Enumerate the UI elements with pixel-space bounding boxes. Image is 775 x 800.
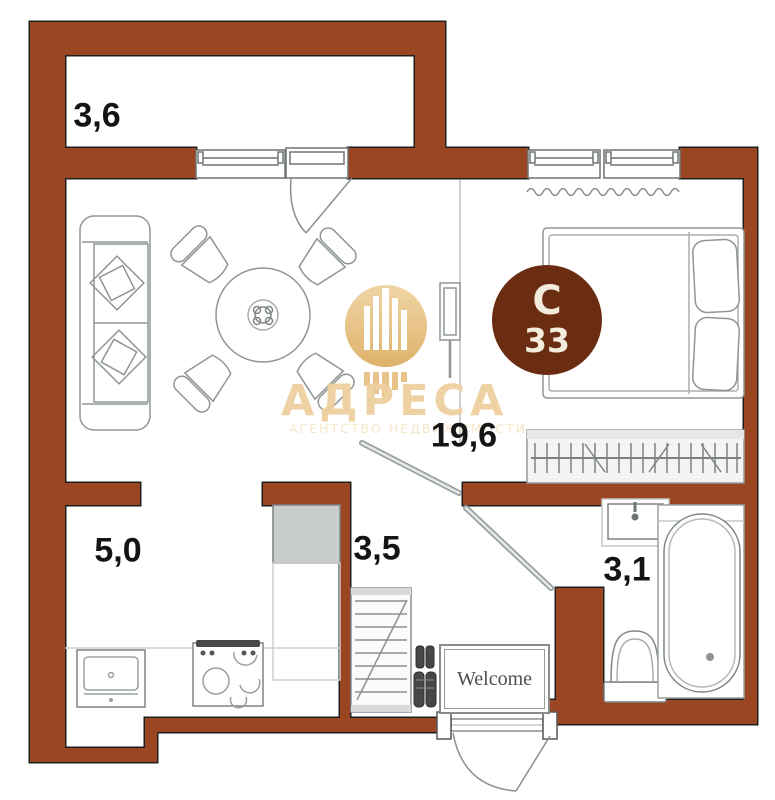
room-label-bathroom: 3,1 [603, 551, 650, 590]
shoe-cabinet [351, 588, 411, 712]
balcony-door [286, 148, 352, 233]
fridge [273, 505, 340, 563]
entry-door [437, 712, 557, 791]
door-leaf-bathroom [466, 508, 551, 588]
wall-top-a [65, 148, 196, 178]
chair [171, 347, 239, 415]
room-label-balcony: 3,6 [73, 97, 120, 136]
stove [193, 640, 263, 708]
room-label-living: 19,6 [431, 417, 497, 456]
room-label-kitchen: 5,0 [94, 532, 141, 571]
wall-right [744, 148, 757, 722]
bed-pillow [692, 317, 740, 391]
kitchen-sink [77, 650, 145, 707]
tv [440, 283, 460, 378]
wall-bath-partition [556, 588, 603, 702]
curtain [527, 189, 679, 196]
wall-kitchen-hall [340, 505, 350, 720]
wall-top-b [348, 148, 528, 178]
sofa [80, 216, 150, 430]
wall-bottom-left [30, 748, 157, 762]
welcome-mat: Welcome [439, 644, 550, 714]
wardrobe [527, 430, 744, 483]
chair [168, 223, 236, 291]
wall-balcony-top [30, 22, 445, 55]
wall-divider-mid [263, 483, 350, 505]
wall-entrance [157, 718, 437, 732]
room-label-hallway: 3,5 [353, 530, 400, 569]
boots [414, 646, 436, 707]
unit-badge-number: 33 [524, 322, 570, 360]
wall-divider-left-stub [65, 483, 140, 505]
wall-left [30, 22, 65, 762]
wall-balcony-right [415, 55, 445, 150]
wall-bath-bottom [549, 700, 757, 724]
welcome-mat-text: Welcome [457, 668, 532, 691]
dining-table [216, 268, 310, 362]
window-bedroom-1 [528, 150, 600, 178]
unit-badge: С 33 [492, 265, 602, 375]
apartment-floor-plan: АДРЕСА АГЕНТСТВО НЕДВИЖИМОСТИ 3,6 19,6 5… [0, 0, 775, 800]
kitchen-cabinet [273, 563, 340, 680]
bed-pillow [692, 239, 740, 313]
wall-bottom-step [145, 718, 157, 762]
toilet [604, 631, 666, 702]
window-bedroom-2 [604, 150, 680, 178]
chair [289, 345, 357, 413]
unit-badge-letter: С [532, 280, 561, 322]
window-living [196, 150, 285, 178]
chair [291, 225, 359, 293]
bathtub [658, 505, 744, 698]
